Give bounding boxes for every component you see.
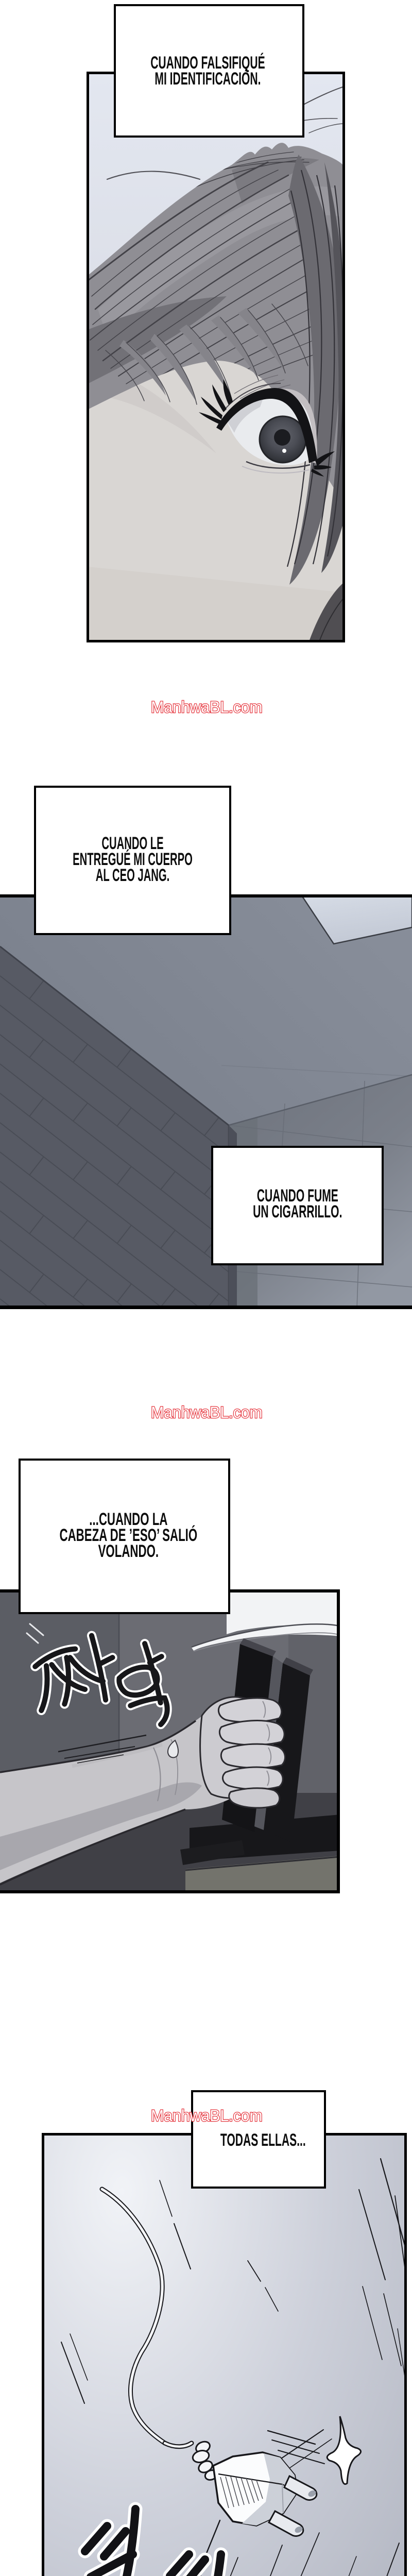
svg-text:ManhwaBL.com: ManhwaBL.com bbox=[151, 698, 263, 716]
svg-text:ManhwaBL.com: ManhwaBL.com bbox=[151, 1403, 263, 1421]
svg-text:ManhwaBL.com: ManhwaBL.com bbox=[151, 2106, 263, 2125]
